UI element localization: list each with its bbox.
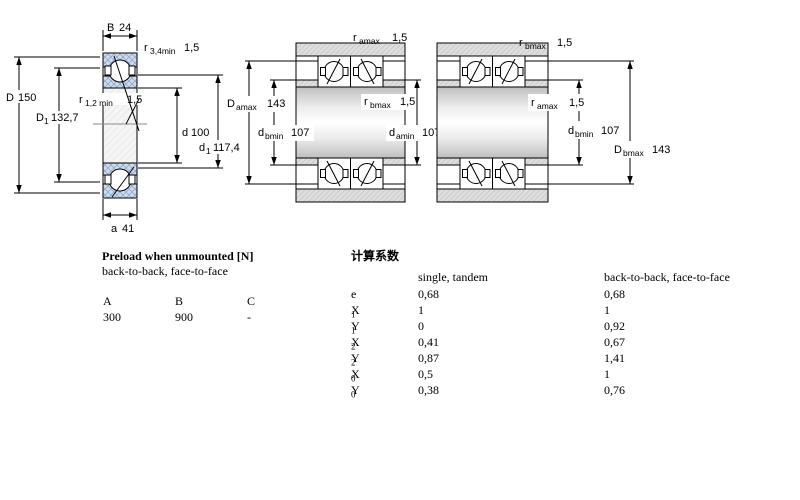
ball [109, 60, 131, 82]
cage-land [485, 68, 490, 76]
factor-row: X1 1 1 [351, 303, 771, 319]
preload-value-C: - [247, 310, 251, 324]
factor-row: X0 0,5 1 [351, 367, 771, 383]
cage-land [376, 68, 381, 76]
dim-ramax-label: r [353, 32, 357, 44]
dim-dbmin-sub: bmin [265, 131, 284, 141]
dim-rbmax-sub: bmax [525, 41, 547, 51]
preload-value-A: 300 [103, 310, 121, 324]
cage-land [463, 68, 468, 76]
housing [296, 189, 405, 202]
factor-row: Y1 0 0,92 [351, 319, 771, 335]
dim-r34-value: 1,5 [184, 42, 199, 54]
factor-row: Y2 0,87 1,41 [351, 351, 771, 367]
cage-land [496, 170, 501, 178]
cage-land [105, 175, 111, 184]
shaft-shoulder [296, 158, 318, 165]
factor-row: Y0 0,38 0,76 [351, 383, 771, 399]
cage-land [354, 170, 359, 178]
dim-d1-sub: 1 [206, 146, 211, 156]
dim-Dbmax-value: 143 [652, 144, 670, 156]
dim-dbmin-label: d [568, 125, 574, 137]
factor-value-b2b: 1,41 [604, 351, 625, 365]
factor-value-b2b: 0,76 [604, 383, 625, 397]
factor-value-b2b: 1 [604, 367, 610, 381]
dim-r12-label: r [79, 94, 83, 106]
cage-land [485, 170, 490, 178]
bearing-diagrams: B 24 r 3,4min 1,5 D 150 D 1 132,7 r 1,2 … [0, 0, 800, 248]
dim-B-label: B [107, 22, 114, 34]
dim-d-label: d [182, 127, 188, 139]
dim-Damax-value: 143 [267, 98, 285, 110]
paired-bearing-diagram-1: r amax 1,5 D amax 143 d bmin 107 r bmax … [224, 32, 442, 202]
shaft-shoulder [525, 80, 548, 87]
factor-row: X2 0,41 0,67 [351, 335, 771, 351]
dim-D1-sub: 1 [44, 116, 49, 126]
cage-land [518, 68, 523, 76]
preload-title: Preload when unmounted [N] [102, 249, 253, 263]
dim-a-label: a [111, 223, 118, 235]
factors-col2-header: back-to-back, face-to-face [604, 270, 730, 284]
cage-land [463, 170, 468, 178]
dim-rbmax-sub: bmax [370, 100, 392, 110]
single-bearing-diagram: B 24 r 3,4min 1,5 D 150 D 1 132,7 r 1,2 … [4, 22, 244, 235]
dim-dbmin-sub: bmin [575, 129, 594, 139]
paired-bearing-diagram-2: r bmax 1,5 r amax 1,5 d bmin 107 D bmax … [437, 37, 672, 202]
dim-Dbmax-label: D [614, 144, 622, 156]
dim-r34-label: r [144, 42, 148, 54]
ball [109, 169, 131, 191]
dim-ramax-label: r [531, 97, 535, 109]
dim-r34-sub: 3,4min [150, 46, 176, 56]
cage-land [105, 66, 111, 75]
preload-col-A: A [103, 294, 112, 308]
cage-land [343, 68, 348, 76]
dim-damin-sub: amin [396, 131, 415, 141]
cage-land [321, 170, 326, 178]
factor-value-b2b: 0,67 [604, 335, 625, 349]
factor-value-single: 0,87 [418, 351, 439, 365]
factor-row: e 0,68 0,68 [351, 287, 771, 303]
cage-land [129, 66, 135, 75]
factor-value-single: 0,5 [418, 367, 433, 381]
dim-rbmax-label: r [364, 96, 368, 108]
shaft-shoulder [437, 80, 460, 87]
preload-col-B: B [175, 294, 183, 308]
factor-value-b2b: 0,92 [604, 319, 625, 333]
cage-land [376, 170, 381, 178]
dim-Dbmax-sub: bmax [623, 148, 645, 158]
factor-value-single: 0,68 [418, 287, 439, 301]
dim-rbmax-value: 1,5 [557, 37, 572, 49]
dim-dbmin-value: 107 [291, 127, 309, 139]
cage-land [518, 170, 523, 178]
shaft-shoulder [437, 158, 460, 165]
cage-land [321, 68, 326, 76]
shaft-shoulder [383, 80, 405, 87]
shaft-shoulder [296, 80, 318, 87]
dim-D-value: 150 [18, 92, 36, 104]
dim-dbmin-label: d [258, 127, 264, 139]
dim-ramax-value: 1,5 [392, 32, 407, 44]
factors-col1-header: single, tandem [418, 270, 488, 284]
dim-Damax-label: D [227, 98, 235, 110]
dim-Damax-sub: amax [236, 102, 258, 112]
dim-ramax-sub: amax [537, 101, 559, 111]
dim-D-label: D [6, 92, 14, 104]
dim-dbmin-value: 107 [601, 125, 619, 137]
factor-name: Y0 [351, 383, 356, 401]
factor-value-single: 1 [418, 303, 424, 317]
factors-title: 计算系数 [351, 249, 399, 263]
housing [296, 43, 405, 56]
preload-value-B: 900 [175, 310, 193, 324]
factor-value-b2b: 1 [604, 303, 610, 317]
preload-subtitle: back-to-back, face-to-face [102, 264, 228, 278]
shaft-shoulder [525, 158, 548, 165]
dim-ramax-sub: amax [359, 36, 381, 46]
dim-ramax-value: 1,5 [569, 97, 584, 109]
factor-value-single: 0,38 [418, 383, 439, 397]
dim-D1-value: 132,7 [51, 112, 79, 124]
bearing-datasheet-page: B 24 r 3,4min 1,5 D 150 D 1 132,7 r 1,2 … [0, 0, 800, 500]
dim-D1-label: D [36, 112, 44, 124]
dim-d1-label: d [199, 142, 205, 154]
cage-land [129, 175, 135, 184]
factor-value-b2b: 0,68 [604, 287, 625, 301]
dim-r12-value: 1,5 [127, 94, 142, 106]
dim-r12-sub: 1,2 min [85, 98, 113, 108]
cage-land [354, 68, 359, 76]
dim-rbmax-value: 1,5 [400, 96, 415, 108]
factor-value-single: 0,41 [418, 335, 439, 349]
cage-land [496, 68, 501, 76]
dim-damin-label: d [389, 127, 395, 139]
dim-d-value: 100 [191, 127, 209, 139]
dim-B-value: 24 [119, 22, 131, 34]
shaft-shoulder [383, 158, 405, 165]
housing [437, 189, 548, 202]
factor-value-single: 0 [418, 319, 424, 333]
cage-land [343, 170, 348, 178]
dim-rbmax-label: r [519, 37, 523, 49]
preload-col-C: C [247, 294, 255, 308]
dim-d1-value: 117,4 [213, 142, 240, 154]
dim-a-value: 41 [122, 223, 134, 235]
